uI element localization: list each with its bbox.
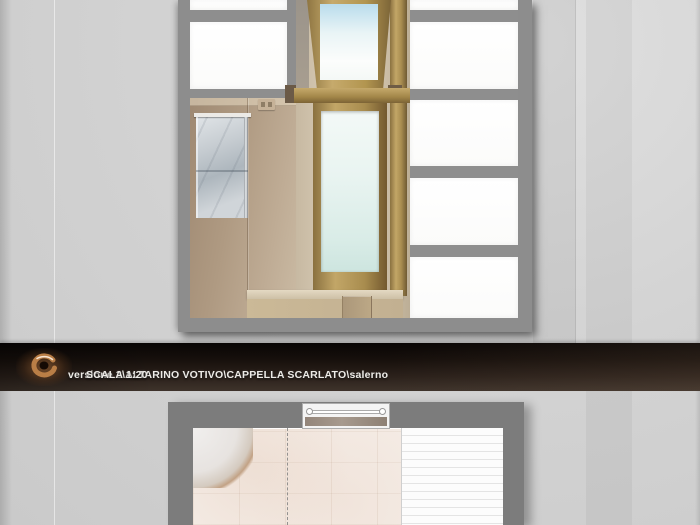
sash-glass <box>320 4 378 80</box>
window-end-circle <box>306 408 313 415</box>
alabaster-panel <box>410 22 518 89</box>
stone-block <box>342 296 372 318</box>
plan-view <box>168 402 524 525</box>
background-fold-band <box>586 0 632 525</box>
alabaster-panel <box>410 178 518 245</box>
window-lower-frame <box>313 103 387 290</box>
background-fold-band <box>533 0 576 343</box>
window-end-circle <box>379 408 386 415</box>
title-bar: versione 2\ALTARINO VOTIVO\CAPPELLA SCAR… <box>0 343 700 391</box>
plan-centerline-dashed <box>287 428 288 525</box>
alabaster-panel <box>410 0 518 10</box>
wall-top-trim <box>190 98 296 106</box>
plan-marble-quarter-column <box>193 428 253 488</box>
plan-window-symbol <box>302 403 390 429</box>
slab-metal-edge <box>244 117 248 218</box>
window-transom-bar <box>294 88 410 103</box>
light-switch-plate <box>258 99 275 110</box>
presentation-sheet: versione 2\ALTARINO VOTIVO\CAPPELLA SCAR… <box>0 0 700 525</box>
window-glass <box>321 111 379 272</box>
background-fold-line <box>54 0 55 525</box>
slab-seam <box>196 170 248 172</box>
slab-edge <box>196 117 198 218</box>
background-left-edge-shade <box>0 0 12 525</box>
plan-hatched-area <box>401 428 503 525</box>
spiral-logo-icon <box>29 353 59 381</box>
altar-marble-slab <box>196 117 248 218</box>
elevation-view <box>178 0 532 332</box>
window-left-upright <box>296 0 309 92</box>
alabaster-panel <box>190 22 287 89</box>
window-sill <box>247 290 403 299</box>
alabaster-panel <box>410 257 518 318</box>
window-upper-sash-tilted <box>307 0 391 90</box>
alabaster-panel <box>190 0 287 10</box>
scale-label: SCALA 1:20 <box>86 369 148 381</box>
window-wood-jamb <box>390 0 407 296</box>
stone-apron <box>247 299 403 318</box>
alabaster-panel <box>410 100 518 166</box>
window-rod-line <box>308 411 384 413</box>
title-bar-tint <box>0 343 700 391</box>
marble-veins <box>196 117 248 218</box>
elevation-canvas <box>190 0 518 318</box>
background-right-edge-shade <box>695 0 700 525</box>
window-wall-band <box>305 417 387 426</box>
slab-top-cap <box>194 113 251 117</box>
